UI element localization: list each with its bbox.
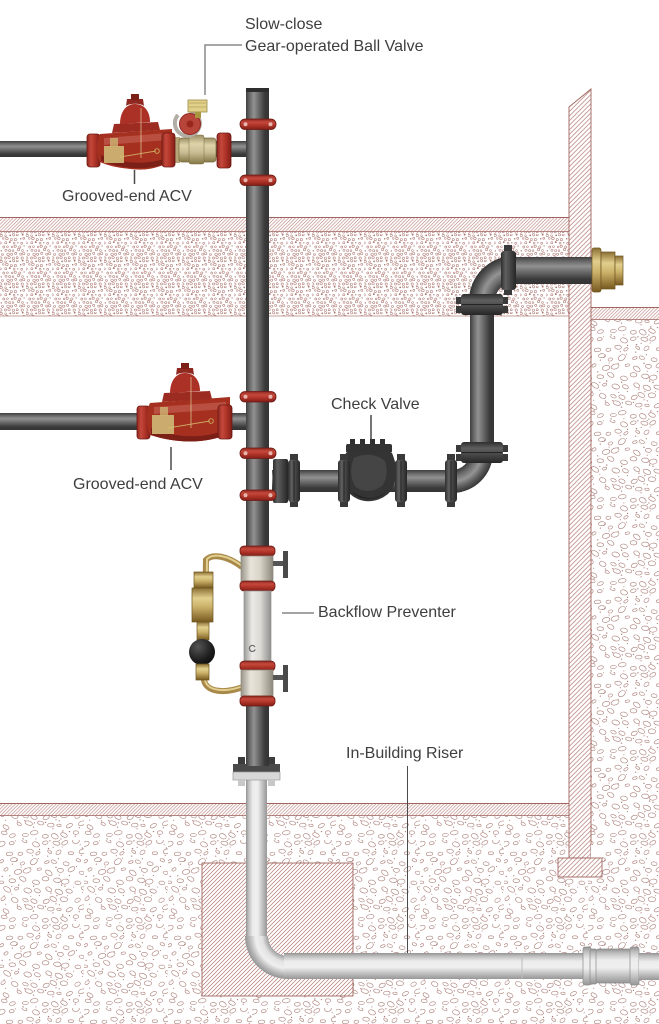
svg-text:In-Building Riser: In-Building Riser	[346, 745, 464, 762]
svg-text:Grooved-end ACV: Grooved-end ACV	[62, 188, 192, 205]
svg-text:Gear-operated Ball Valve: Gear-operated Ball Valve	[245, 38, 424, 55]
svg-text:Grooved-end ACV: Grooved-end ACV	[73, 476, 203, 493]
svg-text:Slow-close: Slow-close	[245, 16, 322, 33]
svg-text:Backflow Preventer: Backflow Preventer	[318, 604, 457, 621]
svg-text:Check Valve: Check Valve	[331, 396, 420, 413]
